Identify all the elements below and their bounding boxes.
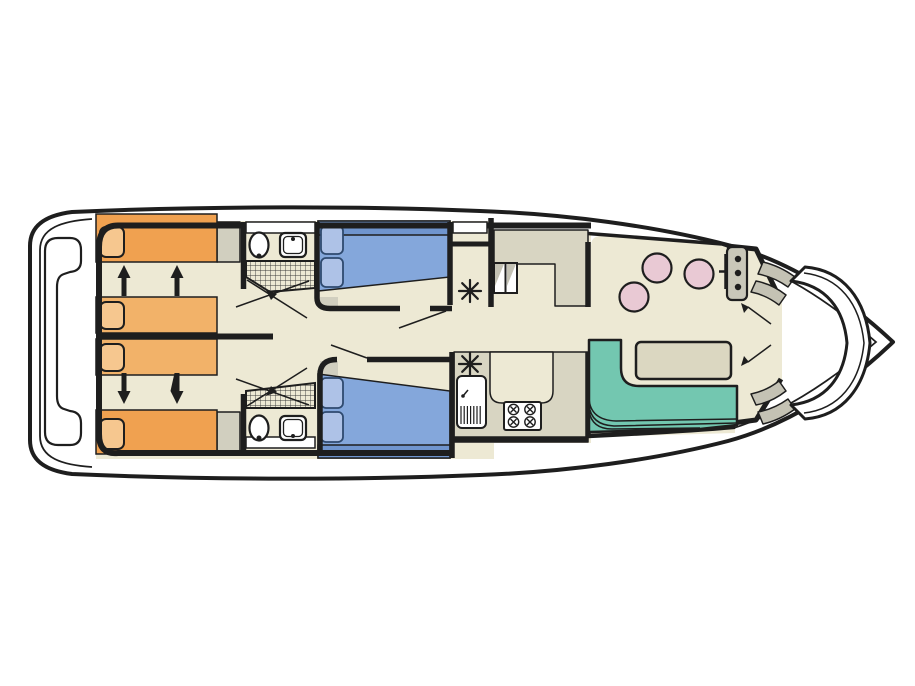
drainer-lines xyxy=(461,406,480,424)
pillow xyxy=(321,378,343,408)
pillow xyxy=(321,258,343,287)
pillow xyxy=(100,302,124,329)
vent-star-icon xyxy=(459,280,481,302)
pillow xyxy=(321,226,343,254)
pillow xyxy=(321,412,343,442)
stool xyxy=(620,283,649,312)
sink-drainer-unit xyxy=(457,376,486,428)
console-gauge xyxy=(735,270,741,276)
faucet xyxy=(291,237,295,241)
stool xyxy=(685,260,714,289)
stool xyxy=(643,254,672,283)
toilet-hinge xyxy=(257,436,262,441)
galley-floor-notch xyxy=(490,352,553,403)
boat-floor-plan xyxy=(0,0,915,686)
stove-4-burner xyxy=(504,402,541,430)
floor-plan-canvas xyxy=(0,0,915,686)
vent-star-icon xyxy=(459,353,481,375)
console-gauge xyxy=(735,284,741,290)
console-gauge xyxy=(735,256,741,262)
bathroom-port-shelf xyxy=(246,222,315,233)
companionway-steps xyxy=(494,263,517,293)
dinette-table xyxy=(636,342,731,379)
faucet xyxy=(291,434,295,438)
wardrobe-port-shelf xyxy=(453,222,487,233)
pillow xyxy=(100,344,124,371)
toilet-hinge xyxy=(257,254,262,259)
aft-bedside-cabinet-starboard xyxy=(217,412,240,452)
